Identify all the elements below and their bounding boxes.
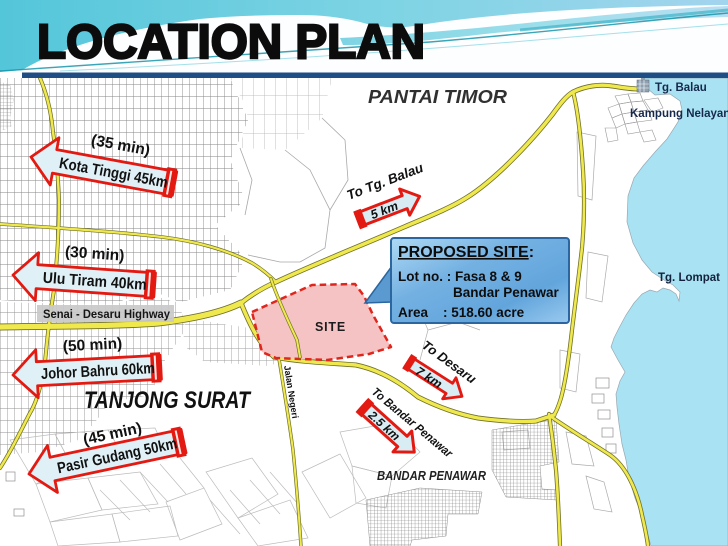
svg-text:BANDAR PENAWAR: BANDAR PENAWAR [377, 469, 486, 483]
svg-text:PROPOSED SITE:: PROPOSED SITE: [398, 244, 534, 261]
svg-text:Senai - Desaru Highway: Senai - Desaru Highway [43, 309, 171, 321]
svg-text:Tg. Balau: Tg. Balau [655, 82, 707, 94]
svg-text:Area : 518.60 acre: Area : 518.60 acre [398, 305, 525, 320]
svg-text:Tg. Lompat: Tg. Lompat [658, 272, 720, 284]
svg-text:Bandar Penawar: Bandar Penawar [453, 285, 560, 300]
svg-text:Kampung Nelayan: Kampung Nelayan [630, 108, 728, 120]
svg-text:Lot no. : Fasa 8 & 9: Lot no. : Fasa 8 & 9 [398, 269, 522, 284]
svg-text:TANJONG SURAT: TANJONG SURAT [84, 387, 252, 414]
svg-text:SITE: SITE [315, 320, 346, 334]
svg-text:(50 min): (50 min) [62, 335, 122, 355]
svg-text:LOCATION PLAN: LOCATION PLAN [37, 16, 425, 69]
svg-text:PANTAI TIMOR: PANTAI TIMOR [368, 87, 507, 107]
